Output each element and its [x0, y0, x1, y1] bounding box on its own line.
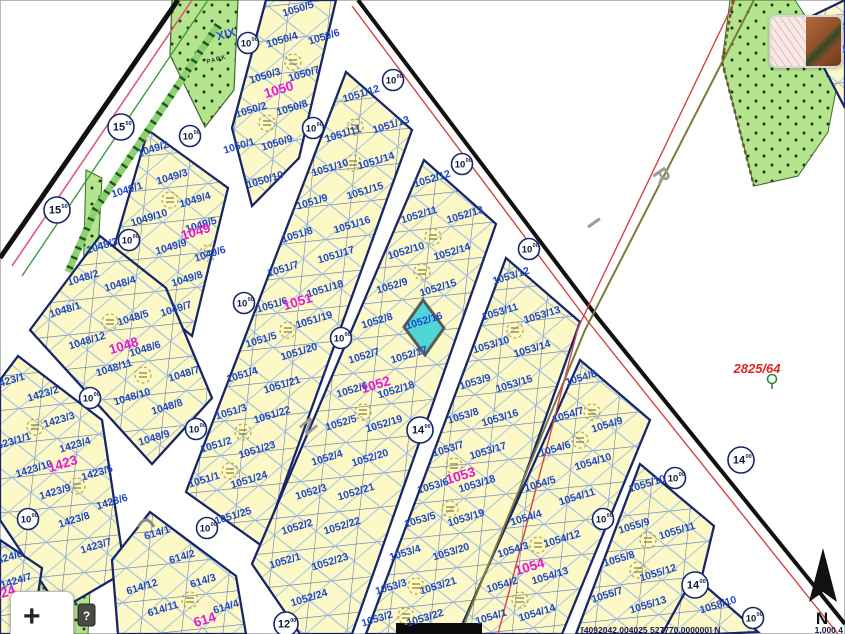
svg-text:12: 12 — [278, 619, 290, 631]
map-viewport[interactable]: ? 15501550100010001000100010001000100010… — [0, 0, 845, 634]
aerial-photo-inset[interactable] — [769, 15, 843, 68]
svg-text:14: 14 — [412, 425, 425, 437]
road-width-marker: 1000 — [383, 70, 404, 91]
svg-text:00: 00 — [200, 423, 206, 429]
svg-text:00: 00 — [252, 37, 258, 43]
svg-text:10: 10 — [241, 39, 252, 50]
svg-text:00: 00 — [290, 618, 296, 624]
svg-text:00: 00 — [679, 472, 685, 478]
survey-label: 2825/64 — [733, 361, 782, 376]
svg-text:10: 10 — [200, 524, 211, 535]
svg-text:10: 10 — [334, 334, 345, 345]
road-width-marker: 1000 — [180, 126, 201, 147]
zoom-in-button[interactable]: + — [10, 591, 74, 634]
aerial-photo-thumb — [806, 17, 841, 66]
street-letter: I — [582, 214, 604, 232]
road-width-marker: 1400 — [407, 417, 433, 443]
svg-text:15: 15 — [113, 122, 125, 134]
signpost-glyph: ? — [83, 609, 90, 623]
cadastral-map[interactable]: ? 15501550100010001000100010001000100010… — [0, 0, 845, 634]
svg-text:00: 00 — [607, 513, 613, 519]
road-width-marker: 1400 — [682, 572, 708, 598]
road-width-marker: 1000 — [331, 328, 352, 349]
road-width-marker: 1000 — [234, 293, 255, 314]
svg-text:15: 15 — [49, 205, 61, 217]
coordinate-readout: [4092042.004025 527770.000000] N — [581, 625, 720, 634]
road-width-marker: 1000 — [119, 230, 140, 251]
svg-text:00: 00 — [533, 243, 539, 249]
svg-text:00: 00 — [700, 579, 706, 585]
svg-text:00: 00 — [397, 74, 403, 80]
block-614 — [112, 512, 246, 634]
svg-text:00: 00 — [425, 424, 431, 430]
svg-text:00: 00 — [194, 130, 200, 136]
svg-text:10: 10 — [386, 76, 397, 87]
svg-text:00: 00 — [317, 122, 323, 128]
road-width-marker: 1000 — [593, 509, 614, 530]
road-width-marker: 1200 — [274, 612, 298, 634]
road-width-marker: 1000 — [186, 419, 207, 440]
svg-text:00: 00 — [757, 612, 763, 618]
north-arrow-icon — [809, 548, 837, 602]
svg-text:00: 00 — [746, 454, 752, 460]
svg-text:10: 10 — [189, 425, 200, 436]
svg-text:10: 10 — [306, 124, 317, 135]
svg-text:00: 00 — [133, 234, 139, 240]
cadastral-sketch-thumb — [771, 17, 806, 66]
road-width-marker: 1000 — [452, 154, 473, 175]
svg-text:00: 00 — [466, 158, 472, 164]
svg-text:10: 10 — [522, 245, 533, 256]
svg-text:00: 00 — [345, 332, 351, 338]
road-width-marker: 1000 — [665, 468, 686, 489]
scale-readout: 1,000 4 — [815, 625, 843, 634]
svg-text:10: 10 — [596, 515, 607, 526]
svg-text:10: 10 — [21, 515, 32, 526]
svg-text:00: 00 — [94, 392, 100, 398]
svg-text:10: 10 — [83, 394, 94, 405]
svg-text:14: 14 — [687, 580, 700, 592]
road-width-marker: 1550 — [108, 114, 134, 140]
svg-text:10: 10 — [455, 160, 466, 171]
road-width-marker: 1000 — [18, 509, 39, 530]
svg-text:50: 50 — [62, 204, 68, 210]
road-width-marker: 1000 — [238, 33, 259, 54]
svg-text:14: 14 — [733, 455, 746, 467]
svg-text:10: 10 — [746, 614, 757, 625]
road-width-marker: 1550 — [44, 197, 70, 223]
road-width-marker: 1000 — [80, 388, 101, 409]
svg-text:10: 10 — [237, 299, 248, 310]
road-width-marker: 1000 — [303, 118, 324, 139]
svg-text:10: 10 — [183, 132, 194, 143]
svg-text:00: 00 — [32, 513, 38, 519]
svg-text:10: 10 — [122, 236, 133, 247]
road-width-marker: 1400 — [728, 447, 754, 473]
street-letter: R — [648, 163, 676, 189]
svg-text:10: 10 — [668, 474, 679, 485]
status-bar: [4092042.004025 527770.000000] N 1,000 4 — [581, 625, 843, 634]
svg-text:50: 50 — [126, 121, 132, 127]
road-width-marker: 1000 — [519, 239, 540, 260]
north-arrow: N — [800, 544, 844, 630]
svg-text:00: 00 — [248, 297, 254, 303]
